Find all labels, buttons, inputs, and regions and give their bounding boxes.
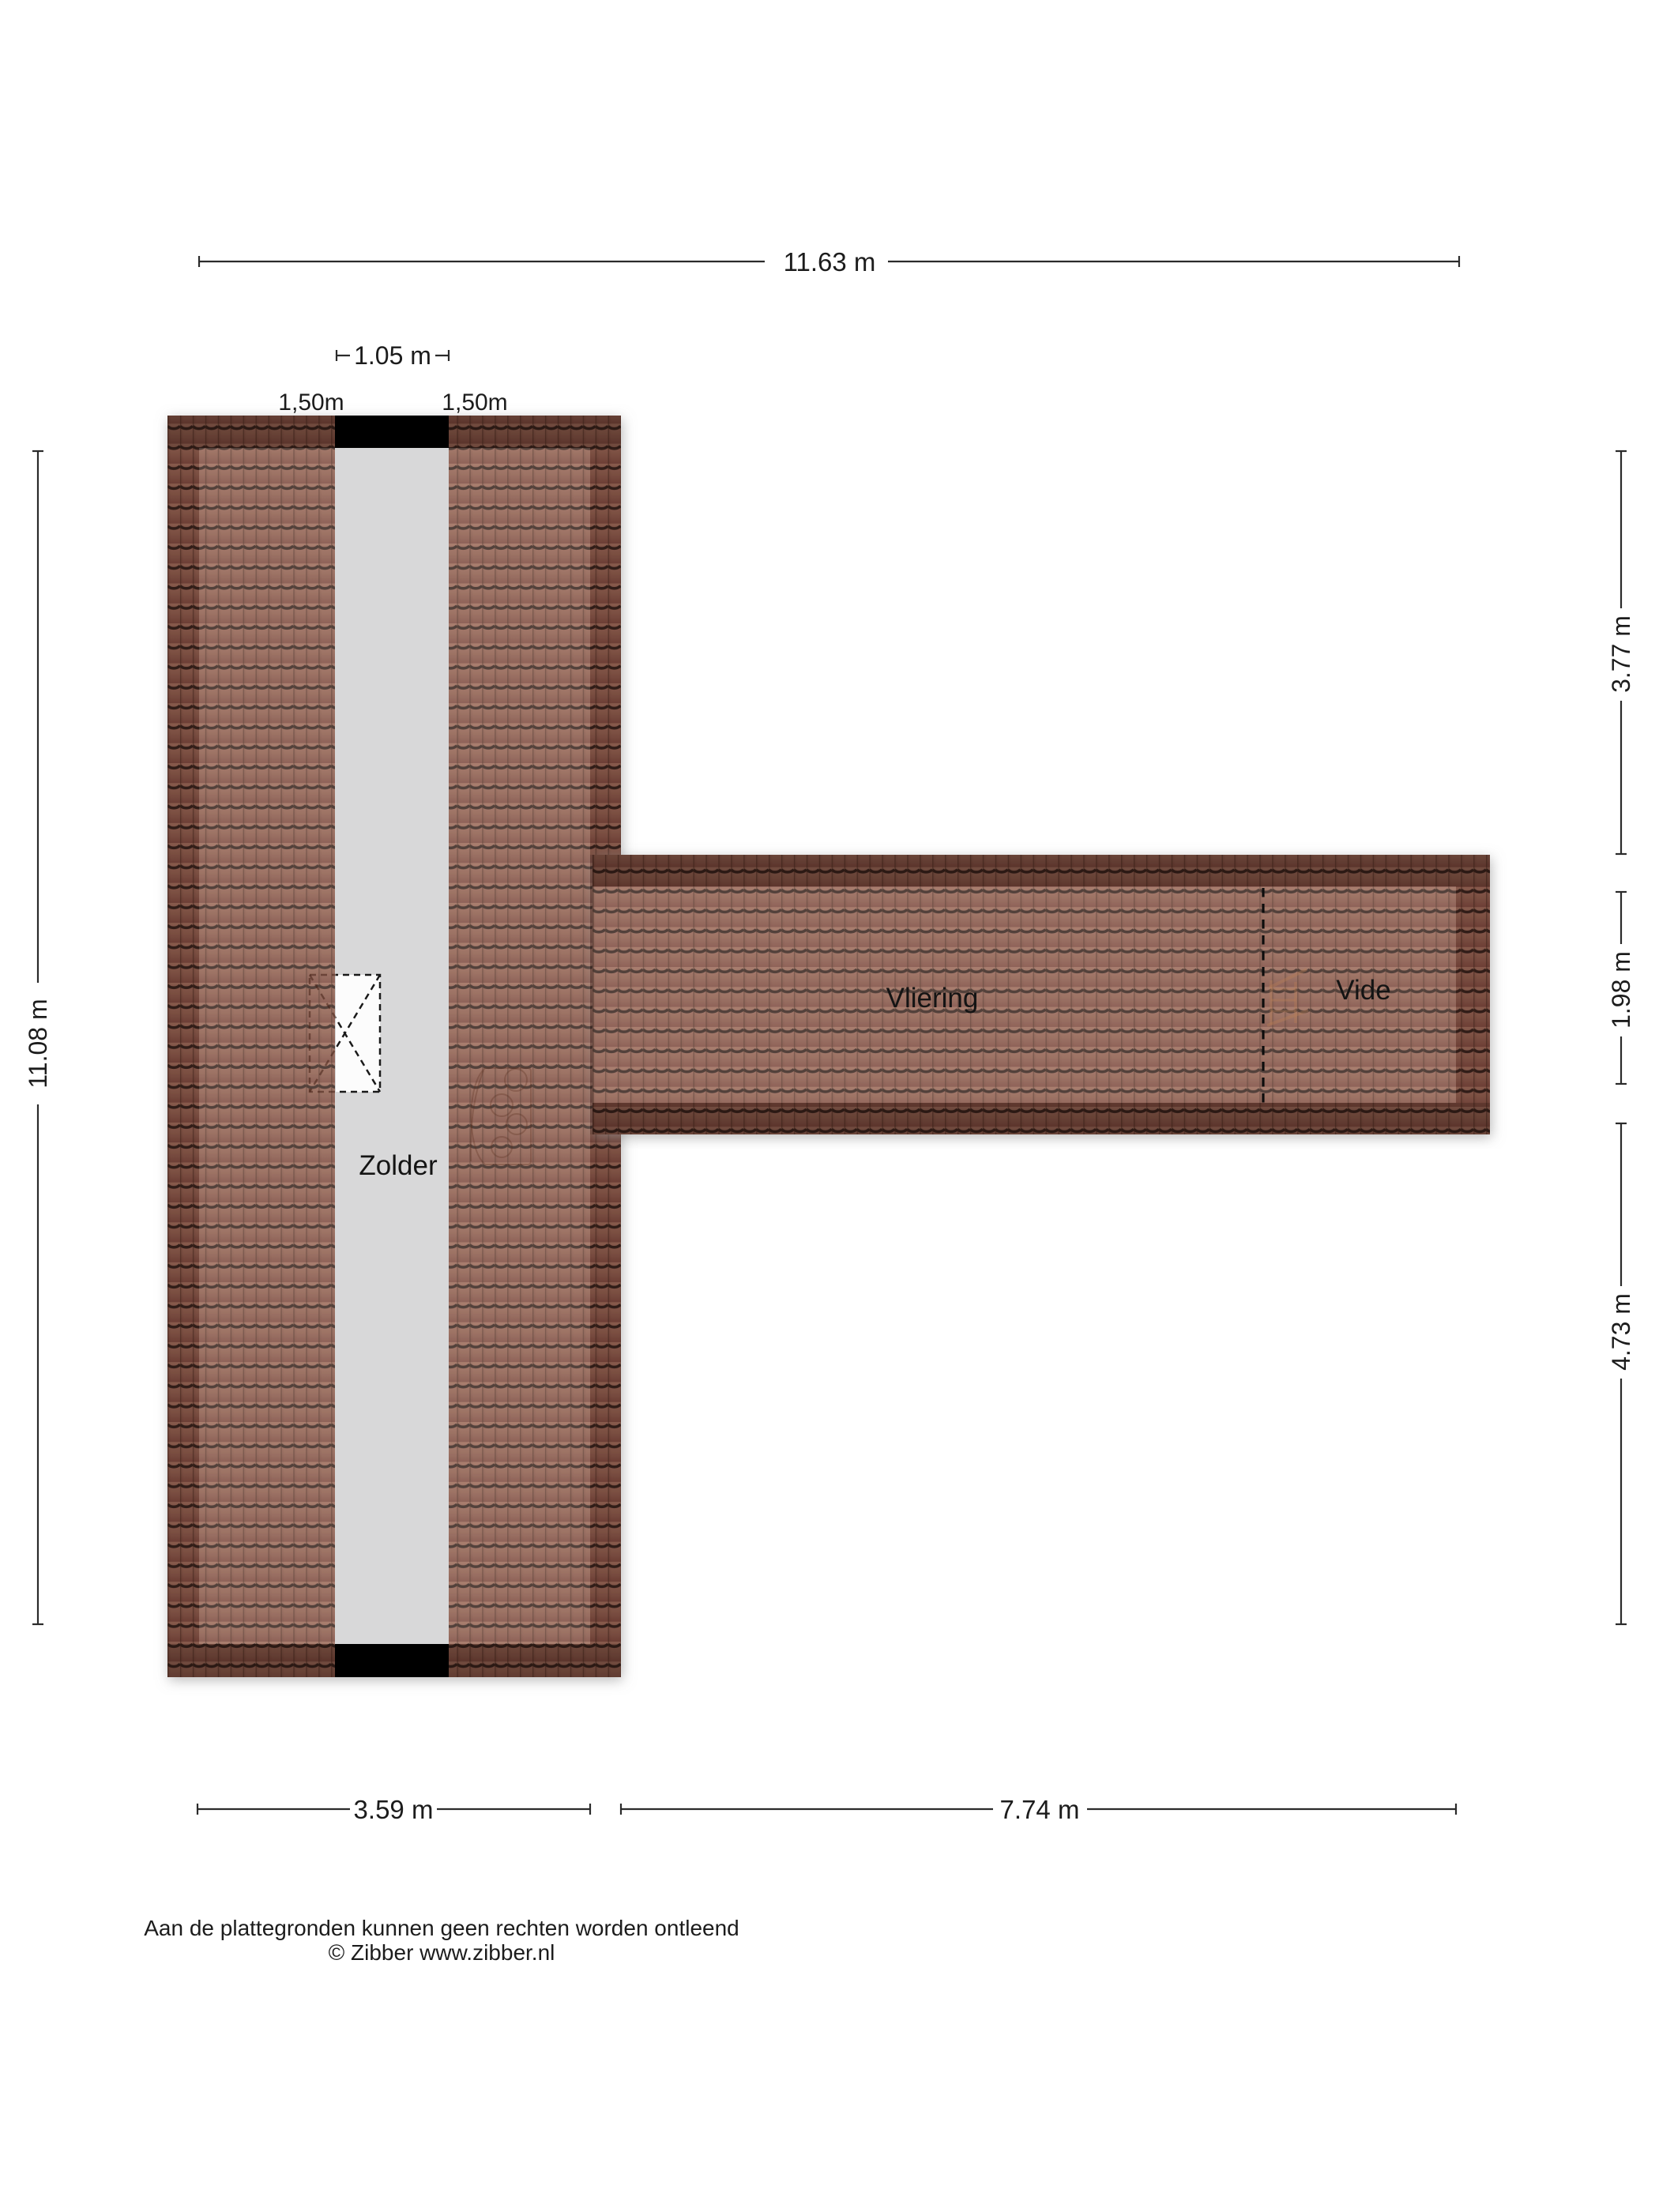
- svg-text:3.59 m: 3.59 m: [354, 1795, 434, 1824]
- svg-text:11.63 m: 11.63 m: [784, 247, 876, 276]
- svg-text:1.05 m: 1.05 m: [354, 341, 431, 370]
- svg-text:1.98 m: 1.98 m: [1607, 951, 1635, 1029]
- svg-text:1,50m: 1,50m: [442, 389, 507, 416]
- svg-text:© Zibber www.zibber.nl: © Zibber www.zibber.nl: [329, 1940, 555, 1965]
- svg-text:Aan de plattegronden kunnen ge: Aan de plattegronden kunnen geen rechten…: [144, 1916, 739, 1940]
- svg-text:Zolder: Zolder: [359, 1150, 438, 1181]
- svg-text:4.73 m: 4.73 m: [1607, 1293, 1635, 1371]
- svg-text:1,50m: 1,50m: [278, 389, 344, 416]
- svg-text:11.08 m: 11.08 m: [24, 999, 52, 1088]
- svg-text:Vliering: Vliering: [886, 983, 979, 1014]
- svg-text:3.77 m: 3.77 m: [1607, 615, 1635, 693]
- svg-text:Vide: Vide: [1336, 975, 1390, 1006]
- svg-text:7.74 m: 7.74 m: [1000, 1795, 1080, 1824]
